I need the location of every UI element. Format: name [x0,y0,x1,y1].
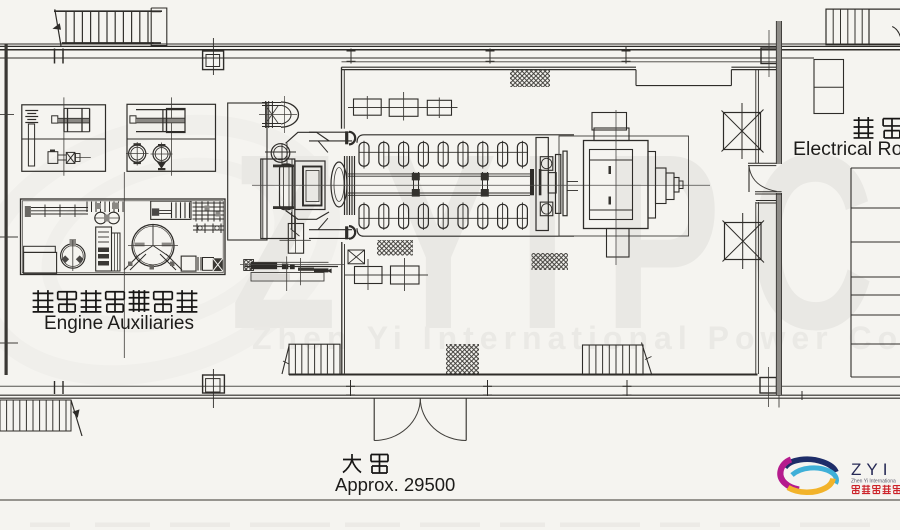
svg-text:Zhen Yi International Power Co: Zhen Yi International Power Co., Lt [252,320,900,356]
svg-text:Engine Auxiliaries: Engine Auxiliaries [44,313,194,334]
svg-text:ZYI: ZYI [851,460,892,479]
svg-text:Approx. 29500: Approx. 29500 [335,474,455,495]
svg-text:Electrical Roo: Electrical Roo [793,138,900,160]
svg-text:Zhen Yi Internationa: Zhen Yi Internationa [851,479,896,485]
